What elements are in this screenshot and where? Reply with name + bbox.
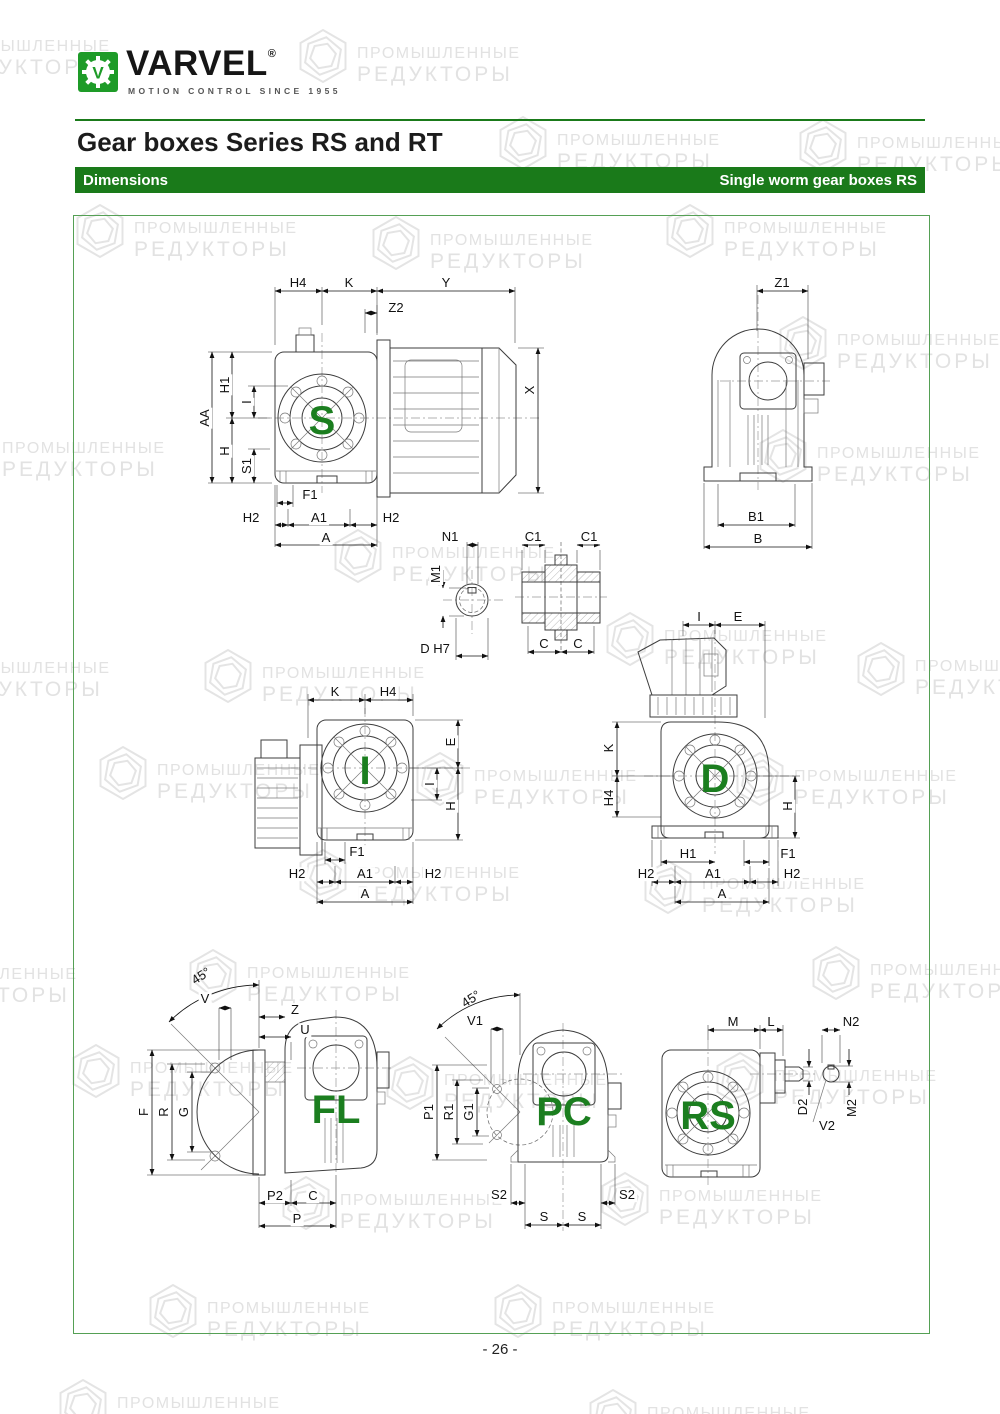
hexagon-watermark-icon (55, 1375, 111, 1414)
dim-label: A (320, 531, 333, 545)
section-bar: Dimensions Single worm gear boxes RS (75, 167, 925, 193)
watermark-tile: ПРОМЫШЛЕННЫЕ РЕДУКТОРЫ (55, 1375, 281, 1414)
dim-label: H (218, 444, 232, 457)
dim-label: H4 (602, 788, 616, 809)
watermark-text-line1: ПРОМЫШЛЕННЫЕ (647, 1405, 811, 1414)
dim-label: G1 (462, 1101, 476, 1122)
datasheet-page: ПРОМЫШЛЕННЫЕ РЕДУКТОРЫ ПРОМЫШЛЕННЫЕ РЕДУ… (0, 0, 1000, 1414)
brand-tagline: MOTION CONTROL SINCE 1955 (128, 86, 341, 96)
watermark-text-line1: ПРОМЫШЛЕННЫЕ (117, 1395, 281, 1413)
dim-label: X (523, 384, 537, 397)
watermark-text-line1: ПРОМЫШЛЕННЫЕ (557, 132, 721, 150)
dim-label: A1 (703, 867, 723, 881)
dim-label: V2 (817, 1119, 837, 1133)
page-title: Gear boxes Series RS and RT (77, 127, 443, 158)
dim-label: C (306, 1189, 319, 1203)
dim-label: H4 (378, 685, 399, 699)
dim-label: L (765, 1015, 776, 1029)
dim-label: H (444, 799, 458, 812)
drawing-front-view: Z1B1B (690, 275, 950, 565)
drawing-version-pc: 45°V1P1R1G1S2S2SSPC (425, 985, 660, 1240)
dim-label: I (240, 398, 254, 406)
dim-label: N1 (440, 530, 461, 544)
hexagon-watermark-icon (585, 1385, 641, 1414)
dim-label: K (329, 685, 342, 699)
dim-label: F1 (347, 845, 366, 859)
dim-label: F1 (778, 847, 797, 861)
dim-label: M (726, 1015, 741, 1029)
dim-label: H (781, 799, 795, 812)
version-letter: D (701, 758, 730, 800)
dim-label: H2 (782, 867, 803, 881)
dim-label: V1 (465, 1014, 485, 1028)
dim-label: I (695, 610, 703, 624)
dim-label: M1 (429, 563, 443, 585)
watermark-text-line2: РЕДУКТОРЫ (0, 984, 78, 1008)
dim-label: H4 (288, 276, 309, 290)
watermark-text-line1: ПРОМЫШЛЕННЫЕ (0, 966, 78, 984)
watermark-tile: ПРОМЫШЛЕННЫЕ РЕДУКТОРЫ (295, 25, 521, 87)
drawing-shaft-bore-detail: N1M1D H7 (405, 530, 515, 665)
dim-label: D2 (796, 1097, 810, 1118)
green-rule (75, 119, 925, 121)
dim-label: R1 (442, 1102, 456, 1123)
dim-label: R (157, 1105, 171, 1118)
dim-label: C1 (523, 530, 544, 544)
dim-label: A (359, 887, 372, 901)
dim-label: H2 (381, 511, 402, 525)
dim-label: D H7 (418, 642, 452, 656)
page-number: - 26 - (0, 1341, 1000, 1358)
dim-label: E (732, 610, 745, 624)
dim-label: C1 (579, 530, 600, 544)
dim-label: F1 (300, 488, 319, 502)
drawing-version-d: IEKH4HH1F1H2A1H2AD (600, 610, 890, 910)
dim-label: H1 (218, 375, 232, 396)
varvel-gear-logo-icon: V (78, 52, 118, 92)
varvel-logo: V (78, 52, 118, 92)
watermark-tile: ПРОМЫШЛЕННЫЕ РЕДУКТОРЫ (0, 946, 78, 1008)
dim-label: H2 (287, 867, 308, 881)
dim-label: I (423, 780, 437, 788)
version-letter: PC (536, 1091, 592, 1133)
dim-label: H2 (423, 867, 444, 881)
dim-label: G (177, 1105, 191, 1119)
dim-label: E (444, 736, 458, 749)
section-bar-right: Single worm gear boxes RS (719, 172, 917, 189)
dim-label: F (137, 1106, 151, 1118)
drawing-d-linework (600, 610, 890, 910)
version-letter: I (359, 750, 370, 792)
dim-label: S2 (489, 1188, 509, 1202)
watermark-text-line2: РЕДУКТОРЫ (357, 63, 521, 87)
dim-label: C (537, 637, 550, 651)
dim-label: K (343, 276, 356, 290)
dim-label: H2 (636, 867, 657, 881)
dim-label: Z (289, 1003, 301, 1017)
drawing-version-fl: 45°VZUFRGP2CPFL (135, 960, 405, 1235)
section-bar-left: Dimensions (83, 172, 168, 189)
dim-label: H2 (241, 511, 262, 525)
watermark-text-line1: ПРОМЫШЛЕННЫЕ (357, 45, 521, 63)
dim-label: S (538, 1210, 551, 1224)
dim-label: Z2 (386, 301, 405, 315)
dim-label: U (298, 1023, 311, 1037)
dim-label: P1 (422, 1102, 436, 1122)
version-letter: RS (680, 1095, 736, 1137)
dim-label: A1 (309, 511, 329, 525)
dim-label: V (199, 992, 212, 1006)
dim-label: A (716, 887, 729, 901)
dim-label: Z1 (772, 276, 791, 290)
registered-mark: ® (268, 48, 277, 60)
dim-label: Y (440, 276, 453, 290)
dim-label: S2 (617, 1188, 637, 1202)
watermark-tile: ПРОМЫШЛЕННЫЕ РЕДУКТОРЫ (585, 1385, 811, 1414)
watermark-tile: ПРОМЫШЛЕННЫЕ РЕДУКТОРЫ (495, 112, 721, 174)
dim-label: P (291, 1212, 304, 1226)
dim-label: B1 (746, 510, 766, 524)
dim-label: N2 (841, 1015, 862, 1029)
dim-label: P2 (265, 1189, 285, 1203)
hexagon-watermark-icon (495, 112, 551, 174)
dim-label: C (571, 637, 584, 651)
dim-label: S1 (240, 456, 254, 476)
brand-wordmark: VARVEL® (126, 44, 276, 84)
dim-label: A1 (355, 867, 375, 881)
drawing-version-i: KH4EIHF1H2A1H2AI (245, 680, 475, 910)
drawing-b-linework (690, 275, 950, 565)
version-letter: S (309, 400, 336, 442)
version-letter: FL (312, 1089, 361, 1131)
drawing-version-rs: MLN2D2M2V2RS (655, 1005, 900, 1190)
dim-label: K (602, 742, 616, 755)
dim-label: AA (198, 407, 212, 428)
drawing-version-s: H4KYZ2XAAH1IHS1F1H2A1H2AS (200, 275, 560, 565)
svg-text:V: V (92, 64, 104, 83)
dim-label: B (752, 532, 765, 546)
dim-label: H1 (678, 847, 699, 861)
watermark-text-line1: ПРОМЫШЛЕННЫЕ (857, 135, 1000, 153)
dim-label: M2 (845, 1097, 859, 1119)
dim-label: S (576, 1210, 589, 1224)
hexagon-watermark-icon (295, 25, 351, 87)
